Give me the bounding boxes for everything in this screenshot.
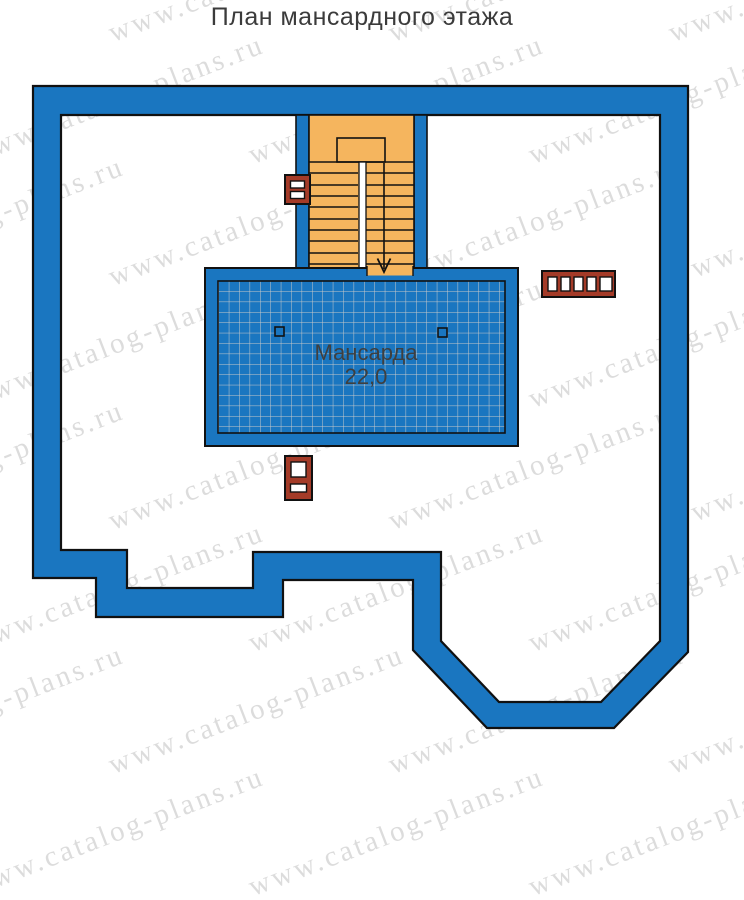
chimney-flue [561, 277, 570, 291]
room-name-label: Мансарда [315, 340, 419, 365]
chimney-below-room [285, 456, 312, 500]
chimney-flue [587, 277, 596, 291]
page-title: План мансардного этажа [0, 3, 724, 32]
chimney-flue [548, 277, 557, 291]
floor-plan-page: www.catalog-plans.ruwww.catalog-plans.ru… [0, 0, 744, 900]
room-mansarda: Мансарда 22,0 [205, 268, 518, 446]
chimney-flue [291, 484, 307, 492]
staircase [296, 115, 427, 275]
chimney-flue [600, 277, 612, 291]
room-column-left [275, 327, 284, 336]
chimney-flue [291, 192, 305, 199]
room-column-right [438, 328, 447, 337]
chimney-flue [574, 277, 583, 291]
chimney-right-wall [542, 271, 615, 297]
chimney-flue [291, 181, 305, 188]
chimney-near-stairs [285, 175, 310, 204]
chimney-flue [291, 462, 306, 477]
stair-stringer-gap [359, 162, 366, 269]
room-area-label: 22,0 [345, 364, 388, 389]
stair-wall-right [414, 115, 427, 269]
chimney-body [285, 175, 310, 204]
stair-opening-floor [367, 266, 413, 276]
floor-plan-drawing: Мансарда 22,0 [0, 0, 744, 900]
